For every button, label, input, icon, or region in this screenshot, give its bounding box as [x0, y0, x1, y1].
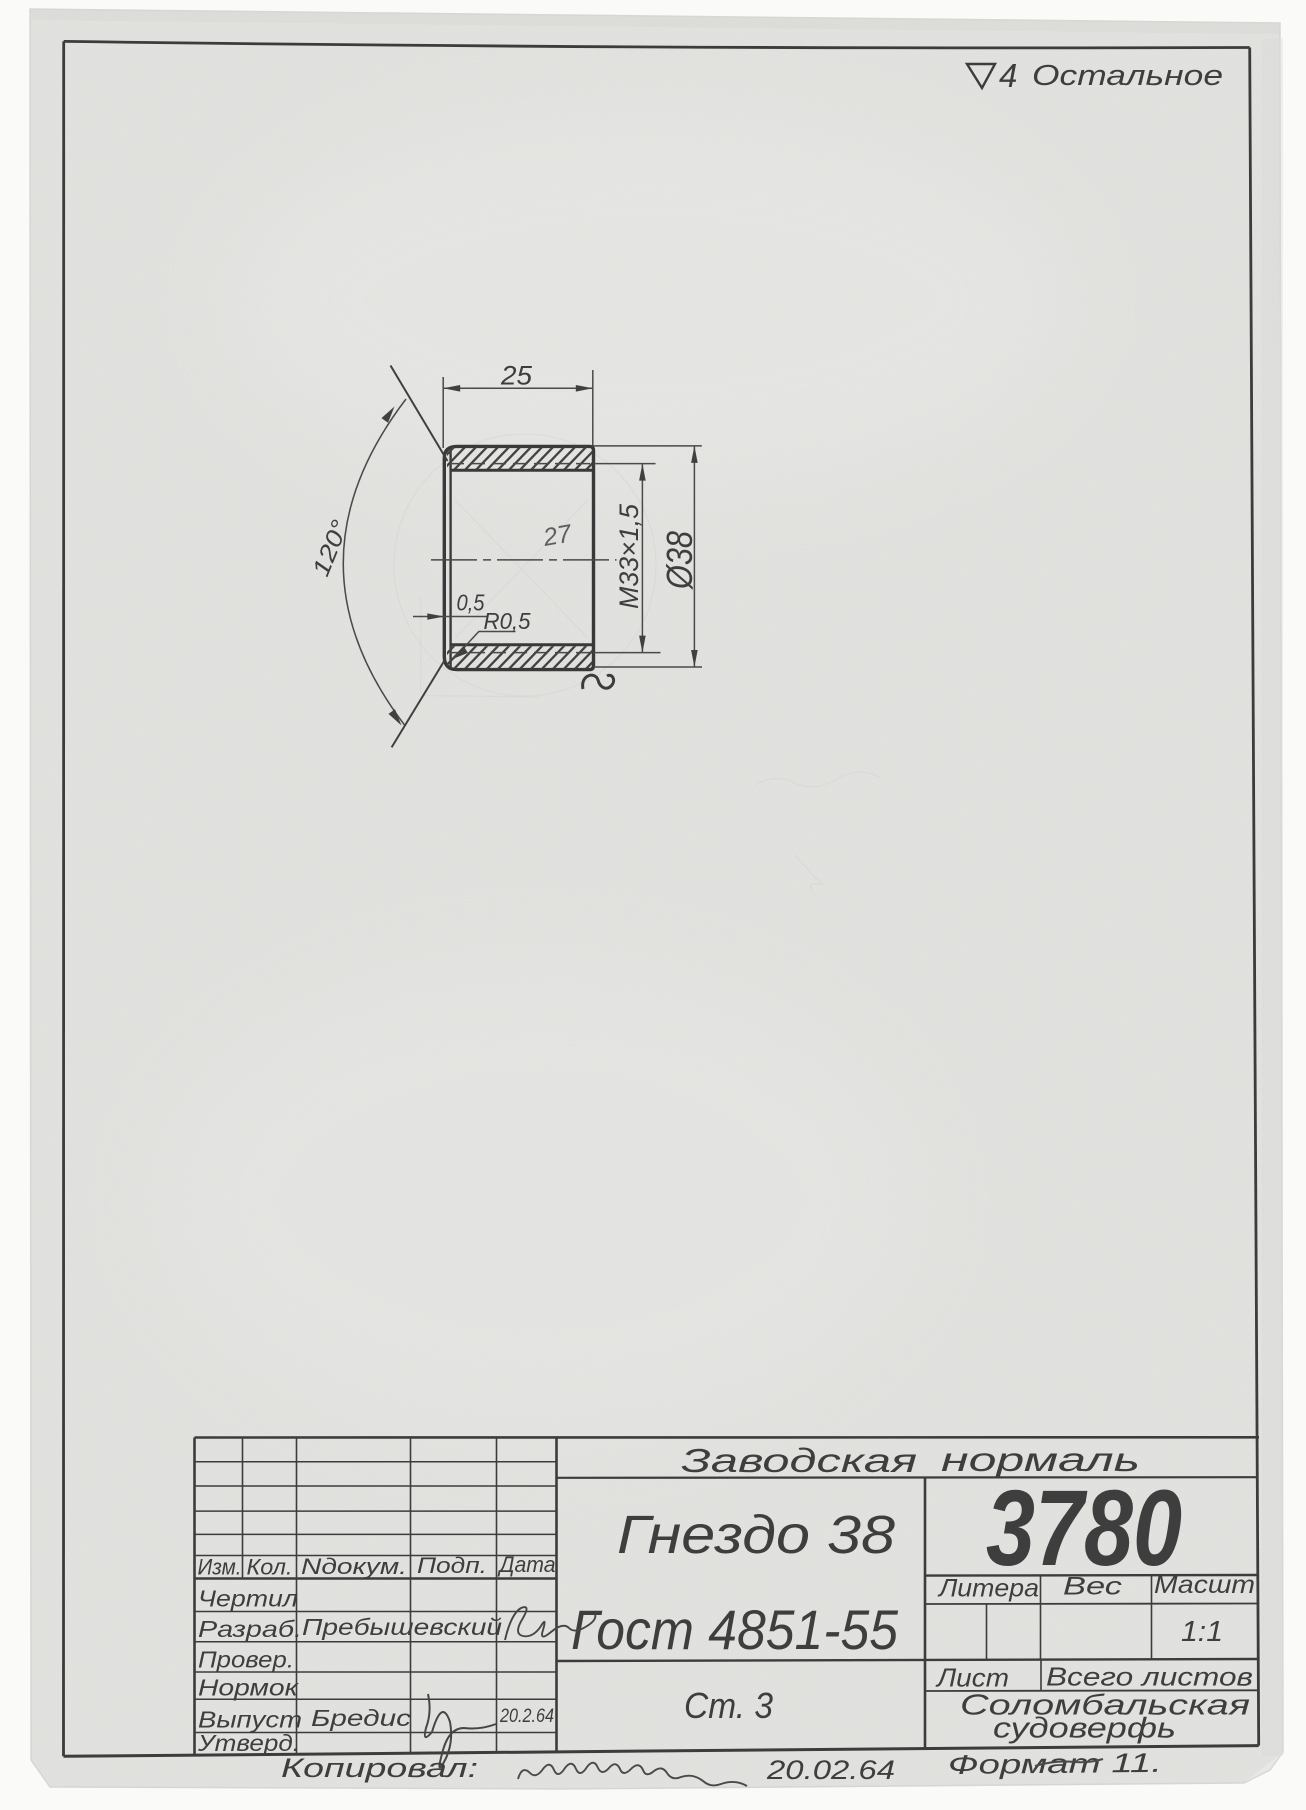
- svg-text:Копировал:: Копировал:: [281, 1753, 478, 1783]
- svg-text:Кол.: Кол.: [247, 1555, 293, 1580]
- svg-text:Чертил: Чертил: [198, 1586, 298, 1612]
- svg-text:Заводская: Заводская: [681, 1442, 917, 1479]
- svg-text:4: 4: [999, 57, 1017, 94]
- svg-text:М33×1,5: М33×1,5: [614, 503, 644, 609]
- svg-text:Подп.: Подп.: [417, 1553, 487, 1578]
- svg-text:Nдокум.: Nдокум.: [301, 1554, 407, 1579]
- svg-text:Бредис: Бредис: [311, 1705, 412, 1731]
- svg-text:Масшт: Масшт: [1154, 1571, 1255, 1599]
- svg-text:Остальное: Остальное: [1032, 60, 1223, 92]
- svg-text:R0,5: R0,5: [484, 608, 531, 634]
- svg-text:0,5: 0,5: [457, 590, 485, 616]
- svg-text:Формат 11.: Формат 11.: [948, 1748, 1162, 1780]
- svg-text:Нормок: Нормок: [198, 1675, 299, 1701]
- svg-text:Выпуст: Выпуст: [198, 1707, 302, 1733]
- svg-text:20.02.64: 20.02.64: [766, 1755, 895, 1785]
- svg-text:3780: 3780: [986, 1467, 1182, 1588]
- svg-text:1:1: 1:1: [1181, 1616, 1223, 1648]
- svg-text:Провер.: Провер.: [198, 1647, 294, 1673]
- svg-text:Ст. 3: Ст. 3: [684, 1685, 773, 1726]
- svg-text:Лист: Лист: [935, 1663, 1009, 1693]
- svg-text:27: 27: [540, 519, 574, 552]
- svg-text:Гост 4851-55: Гост 4851-55: [571, 1598, 899, 1661]
- svg-text:Литера: Литера: [937, 1575, 1039, 1603]
- svg-text:Всего листов: Всего листов: [1046, 1662, 1253, 1692]
- svg-text:Дата: Дата: [497, 1552, 556, 1577]
- svg-text:Ø38: Ø38: [659, 531, 700, 590]
- svg-text:25: 25: [500, 361, 533, 391]
- svg-text:Разраб.: Разраб.: [198, 1616, 302, 1642]
- svg-text:Гнездо 38: Гнездо 38: [617, 1505, 895, 1565]
- svg-text:Пребышевский: Пребышевский: [302, 1614, 502, 1640]
- svg-text:20.2.64: 20.2.64: [499, 1706, 554, 1727]
- svg-text:Вес: Вес: [1063, 1573, 1123, 1601]
- svg-text:судоверфь: судоверфь: [993, 1713, 1176, 1745]
- svg-text:Изм.: Изм.: [198, 1555, 242, 1580]
